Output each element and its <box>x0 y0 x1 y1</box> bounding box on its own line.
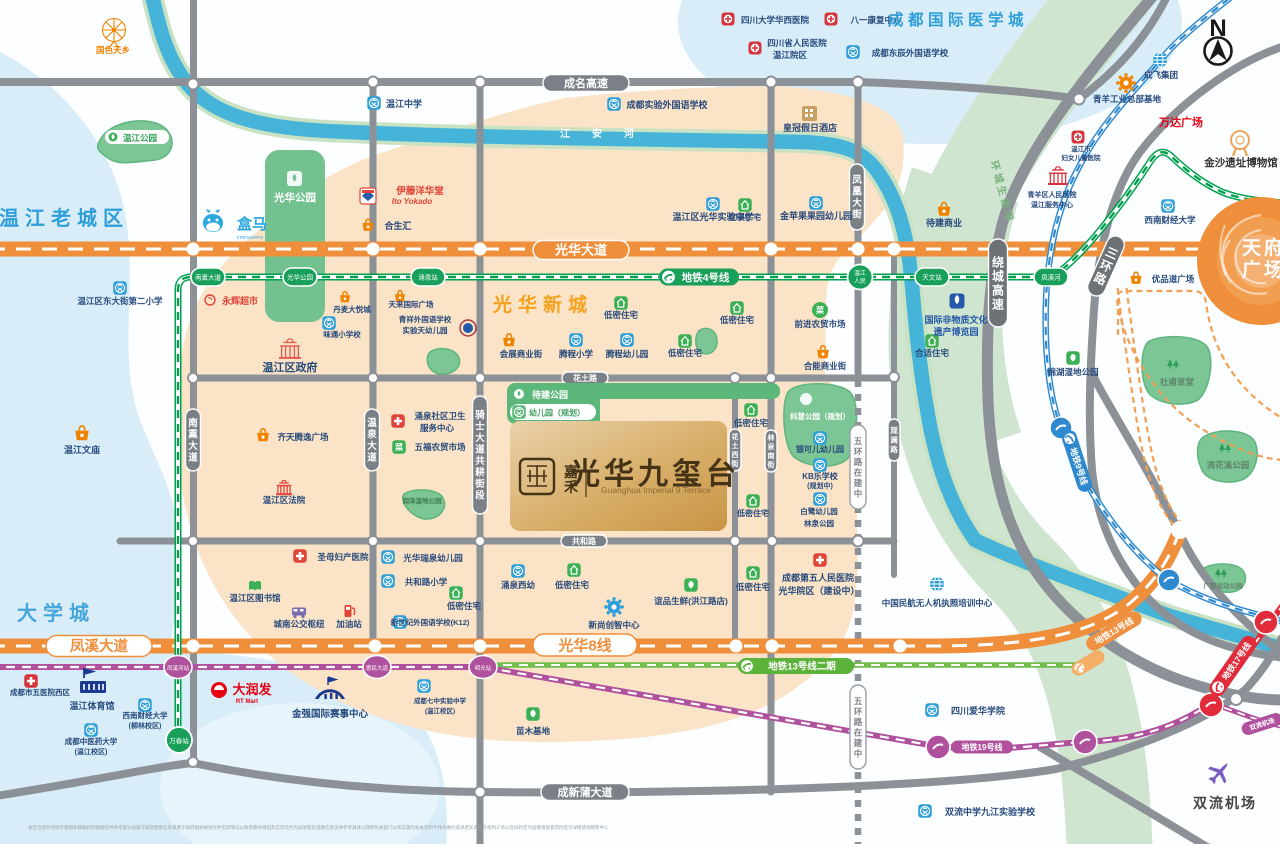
svg-text:环: 环 <box>854 706 863 716</box>
svg-text:泉: 泉 <box>366 429 377 441</box>
svg-text:光华瑞泉幼儿园: 光华瑞泉幼儿园 <box>402 553 463 563</box>
svg-text:道: 道 <box>367 452 377 464</box>
svg-text:温江公园: 温江公园 <box>123 133 157 143</box>
svg-text:在: 在 <box>854 467 863 477</box>
svg-text:成都实验外国语学校: 成都实验外国语学校 <box>626 99 708 110</box>
svg-text:低密住宅: 低密住宅 <box>554 580 590 590</box>
svg-text:光华8线: 光华8线 <box>557 636 611 654</box>
svg-text:成飞集团: 成飞集团 <box>1144 70 1178 80</box>
svg-text:成都市五医院西区: 成都市五医院西区 <box>10 687 70 697</box>
svg-text:街: 街 <box>767 460 775 469</box>
svg-text:路: 路 <box>854 457 863 467</box>
svg-text:土: 土 <box>732 441 739 450</box>
svg-text:耕: 耕 <box>475 467 485 479</box>
svg-text:段: 段 <box>475 490 485 502</box>
svg-text:金沙遗址博物馆: 金沙遗址博物馆 <box>1203 156 1278 169</box>
svg-text:成都东辰外国语学校: 成都东辰外国语学校 <box>872 48 949 58</box>
svg-text:涌泉社区卫生: 涌泉社区卫生 <box>414 411 466 421</box>
svg-text:五福农贸市场: 五福农贸市场 <box>414 442 466 452</box>
svg-text:流花溪公园: 流花溪公园 <box>1207 460 1250 470</box>
svg-text:实验天幼儿园: 实验天幼儿园 <box>403 325 448 335</box>
svg-text:金苹果果园幼儿园: 金苹果果园幼儿园 <box>779 210 852 221</box>
svg-text:Ito Yokado: Ito Yokado <box>392 197 433 206</box>
svg-text:Guanghua Imperial 9 Terrace: Guanghua Imperial 9 Terrace <box>601 485 711 495</box>
svg-text:加油站: 加油站 <box>335 619 362 629</box>
svg-text:银可儿幼儿园: 银可儿幼儿园 <box>795 444 844 454</box>
svg-text:天来国际广场: 天来国际广场 <box>389 299 434 309</box>
svg-text:前进农贸市场: 前进农贸市场 <box>794 319 846 329</box>
svg-text:西南财经大学: 西南财经大学 <box>1144 215 1196 225</box>
svg-text:凤: 凤 <box>852 175 862 186</box>
svg-text:街: 街 <box>851 209 862 221</box>
svg-text:西南财经大学: 西南财经大学 <box>123 710 168 720</box>
svg-text:地铁13号线二期: 地铁13号线二期 <box>768 660 836 672</box>
svg-text:大: 大 <box>475 432 485 444</box>
svg-text:苗木基地: 苗木基地 <box>516 726 551 736</box>
svg-text:五: 五 <box>854 696 863 706</box>
svg-text:环: 环 <box>854 446 863 456</box>
svg-text:温: 温 <box>367 417 377 429</box>
svg-text:低密住宅: 低密住宅 <box>735 582 771 592</box>
svg-text:低密住宅: 低密住宅 <box>719 315 755 325</box>
svg-text:(温江校区): (温江校区) <box>75 747 108 756</box>
svg-text:共和路: 共和路 <box>572 536 597 546</box>
svg-text:青祥外国语学校: 青祥外国语学校 <box>399 314 452 324</box>
svg-text:共和路小学: 共和路小学 <box>405 577 448 587</box>
svg-text:温江区图书馆: 温江区图书馆 <box>229 593 281 603</box>
svg-text:成都国际医学城: 成都国际医学城 <box>888 10 1028 29</box>
svg-text:成都第五人民医院: 成都第五人民医院 <box>782 572 854 583</box>
svg-text:成名高速: 成名高速 <box>564 76 608 90</box>
svg-text:惠民大道: 惠民大道 <box>366 664 389 672</box>
svg-text:花: 花 <box>732 432 739 441</box>
svg-text:观: 观 <box>890 426 898 435</box>
svg-text:新尚创智中心: 新尚创智中心 <box>588 620 640 630</box>
svg-text:皇冠假日酒店: 皇冠假日酒店 <box>783 122 837 133</box>
svg-text:光华院区（建设中）: 光华院区（建设中） <box>777 585 859 596</box>
svg-text:地铁19号线: 地铁19号线 <box>962 742 1003 752</box>
svg-text:地铁4号线: 地铁4号线 <box>682 271 730 284</box>
svg-text:RT Mart: RT Mart <box>236 699 258 705</box>
svg-text:低密住宅: 低密住宅 <box>667 348 703 358</box>
svg-text:南熏大道: 南熏大道 <box>195 273 222 282</box>
svg-text:菜: 菜 <box>394 442 403 452</box>
svg-text:丹麦大悦城: 丹麦大悦城 <box>333 304 371 314</box>
svg-text:温江老城区: 温江老城区 <box>0 206 129 230</box>
svg-text:服务中心: 服务中心 <box>420 423 455 433</box>
svg-text:高: 高 <box>992 282 1004 297</box>
svg-text:永辉超市: 永辉超市 <box>221 295 258 306</box>
svg-text:四川大学华西医院: 四川大学华西医院 <box>741 15 810 25</box>
svg-text:光华大道: 光华大道 <box>554 243 607 258</box>
svg-text:(柳林校区): (柳林校区) <box>129 721 162 730</box>
svg-text:人民: 人民 <box>854 278 866 285</box>
svg-text:凤溪河: 凤溪河 <box>1041 273 1061 282</box>
svg-text:青羊工业总部基地: 青羊工业总部基地 <box>1093 94 1162 104</box>
svg-text:温江市: 温江市 <box>1071 144 1091 153</box>
svg-text:中: 中 <box>854 488 863 498</box>
svg-text:林: 林 <box>768 433 776 442</box>
svg-text:道: 道 <box>475 444 485 456</box>
svg-text:待建公园: 待建公园 <box>532 389 568 400</box>
svg-text:林泉公园: 林泉公园 <box>804 518 834 528</box>
svg-text:温江中学: 温江中学 <box>386 98 422 109</box>
svg-text:道: 道 <box>188 452 198 464</box>
svg-text:成都七中实验中学: 成都七中实验中学 <box>414 696 467 705</box>
svg-text:凤溪河站: 凤溪河站 <box>167 664 190 672</box>
svg-text:青羊区人民医院: 青羊区人民医院 <box>1028 190 1077 199</box>
svg-text:锦湖湿地公园: 锦湖湿地公园 <box>1047 367 1098 377</box>
svg-text:广场: 广场 <box>1242 258 1280 281</box>
svg-text:菜: 菜 <box>815 305 824 315</box>
svg-text:大学城: 大学城 <box>17 601 95 625</box>
svg-text:大润发: 大润发 <box>232 682 272 697</box>
svg-text:路: 路 <box>890 444 898 454</box>
svg-text:万达广场: 万达广场 <box>1158 115 1203 129</box>
svg-text:N: N <box>1209 15 1226 42</box>
svg-text:白鹭幼儿园: 白鹭幼儿园 <box>800 506 838 516</box>
svg-text:四川爱华学院: 四川爱华学院 <box>951 705 1005 716</box>
svg-text:江安河: 江安河 <box>560 127 656 140</box>
svg-text:四川省人民医院: 四川省人民医院 <box>767 38 827 48</box>
svg-text:低密住宅: 低密住宅 <box>736 508 769 518</box>
svg-text:骑: 骑 <box>475 409 485 421</box>
svg-text:腾程幼儿园: 腾程幼儿园 <box>605 349 649 359</box>
svg-text:天府: 天府 <box>1242 236 1280 259</box>
svg-text:杜甫草堂: 杜甫草堂 <box>1160 377 1195 387</box>
svg-text:成都中医药大学: 成都中医药大学 <box>65 736 118 746</box>
svg-text:腾程小学: 腾程小学 <box>558 349 594 359</box>
svg-text:温江: 温江 <box>854 269 866 277</box>
svg-text:润泽湿地公园: 润泽湿地公园 <box>403 496 443 505</box>
svg-text:温江区东大街第二小学: 温江区东大街第二小学 <box>77 296 163 306</box>
svg-text:明光站: 明光站 <box>475 664 492 672</box>
svg-text:凰: 凰 <box>852 187 862 198</box>
svg-text:中: 中 <box>854 748 863 758</box>
svg-text:花土路: 花土路 <box>573 373 598 383</box>
svg-text:国色天乡: 国色天乡 <box>96 45 130 55</box>
svg-text:熏: 熏 <box>188 429 198 441</box>
svg-text:温江院区: 温江院区 <box>773 50 808 60</box>
svg-text:绕: 绕 <box>992 254 1004 269</box>
svg-text:建: 建 <box>853 738 863 748</box>
svg-text:国际非物质文化: 国际非物质文化 <box>924 314 987 325</box>
svg-text:街: 街 <box>474 478 485 490</box>
svg-text:合适住宅: 合适住宅 <box>914 348 950 358</box>
svg-text:科慧公园（规划）: 科慧公园（规划） <box>790 411 850 421</box>
svg-text:涌泉西幼: 涌泉西幼 <box>501 580 536 590</box>
svg-text:谊品生鲜(洪江路店): 谊品生鲜(洪江路店) <box>654 596 728 606</box>
svg-text:FRESHIPPO: FRESHIPPO <box>237 235 264 240</box>
svg-text:合生汇: 合生汇 <box>384 220 411 231</box>
svg-text:大: 大 <box>852 197 862 209</box>
svg-text:低密住宅: 低密住宅 <box>733 418 769 428</box>
svg-text:新世纪外国语学校(K12): 新世纪外国语学校(K12) <box>391 617 470 627</box>
svg-text:五: 五 <box>854 436 863 446</box>
svg-text:城南公交枢纽: 城南公交枢纽 <box>273 619 325 629</box>
svg-text:忆溪仁宅: 忆溪仁宅 <box>729 212 761 222</box>
svg-text:(温江校区): (温江校区) <box>425 706 455 715</box>
svg-text:会展商业街: 会展商业街 <box>499 349 543 359</box>
svg-text:温江区法院: 温江区法院 <box>263 495 306 505</box>
svg-text:南: 南 <box>768 451 775 460</box>
svg-text:本区位图为项目示意图非精确比例地图仅供参考部分道路交通及配套: 本区位图为项目示意图非精确比例地图仅供参考部分道路交通及配套信息来源于政府相关规… <box>28 824 609 831</box>
svg-text:大: 大 <box>188 440 198 452</box>
svg-text:金强国际赛事中心: 金强国际赛事中心 <box>291 708 369 720</box>
svg-text:天文站: 天文站 <box>922 273 942 282</box>
svg-text:建: 建 <box>853 478 863 488</box>
svg-text:温江区政府: 温江区政府 <box>263 360 318 374</box>
svg-text:涌泉站: 涌泉站 <box>418 273 438 282</box>
svg-text:温江体育馆: 温江体育馆 <box>69 700 114 711</box>
svg-text:(规划中): (规划中) <box>807 481 833 490</box>
svg-text:成新蒲大道: 成新蒲大道 <box>558 785 613 799</box>
svg-text:盒马: 盒马 <box>236 215 267 233</box>
svg-text:圣母妇产医院: 圣母妇产医院 <box>316 552 369 562</box>
svg-text:幼儿园（规划）: 幼儿园（规划） <box>529 408 585 418</box>
svg-text:优品道广场: 优品道广场 <box>1152 274 1195 284</box>
svg-text:光华公园: 光华公园 <box>273 191 316 204</box>
svg-text:共: 共 <box>475 455 485 467</box>
svg-text:齐天腾逸广场: 齐天腾逸广场 <box>277 432 329 442</box>
svg-text:泉: 泉 <box>768 442 776 451</box>
svg-text:合能商业街: 合能商业街 <box>803 361 847 371</box>
svg-text:温江服务中心: 温江服务中心 <box>1031 200 1073 209</box>
svg-text:低密住宅: 低密住宅 <box>446 601 482 611</box>
svg-text:路: 路 <box>854 717 863 727</box>
svg-text:光华公园: 光华公园 <box>287 273 313 282</box>
svg-text:城: 城 <box>992 268 1004 283</box>
svg-text:妇女儿童医院: 妇女儿童医院 <box>1062 153 1102 162</box>
svg-text:南: 南 <box>188 417 198 429</box>
svg-text:中国民航无人机执照培训中心: 中国民航无人机执照培训中心 <box>882 598 993 608</box>
svg-text:味通小学校: 味通小学校 <box>323 329 361 339</box>
svg-text:伊藤洋华堂: 伊藤洋华堂 <box>395 185 444 197</box>
svg-text:低密住宅: 低密住宅 <box>603 310 639 320</box>
svg-text:双流中学九江实验学校: 双流中学九江实验学校 <box>945 806 1036 817</box>
svg-text:遗产博览园: 遗产博览园 <box>932 326 978 337</box>
svg-text:速: 速 <box>992 296 1004 311</box>
svg-text:待建商业: 待建商业 <box>926 217 962 228</box>
svg-text:KB乐学校: KB乐学校 <box>802 471 839 481</box>
svg-text:双流机场: 双流机场 <box>1193 795 1257 811</box>
svg-text:士: 士 <box>475 421 485 433</box>
svg-text:大: 大 <box>367 440 377 452</box>
svg-text:温江文庙: 温江文庙 <box>64 444 100 455</box>
svg-text:万春站: 万春站 <box>169 736 189 745</box>
svg-text:澜: 澜 <box>890 435 898 445</box>
svg-text:光华新城: 光华新城 <box>492 293 593 316</box>
svg-text:凤溪大道: 凤溪大道 <box>70 637 128 655</box>
svg-text:在: 在 <box>854 727 863 737</box>
svg-text:广都运动公园: 广都运动公园 <box>1204 581 1244 590</box>
